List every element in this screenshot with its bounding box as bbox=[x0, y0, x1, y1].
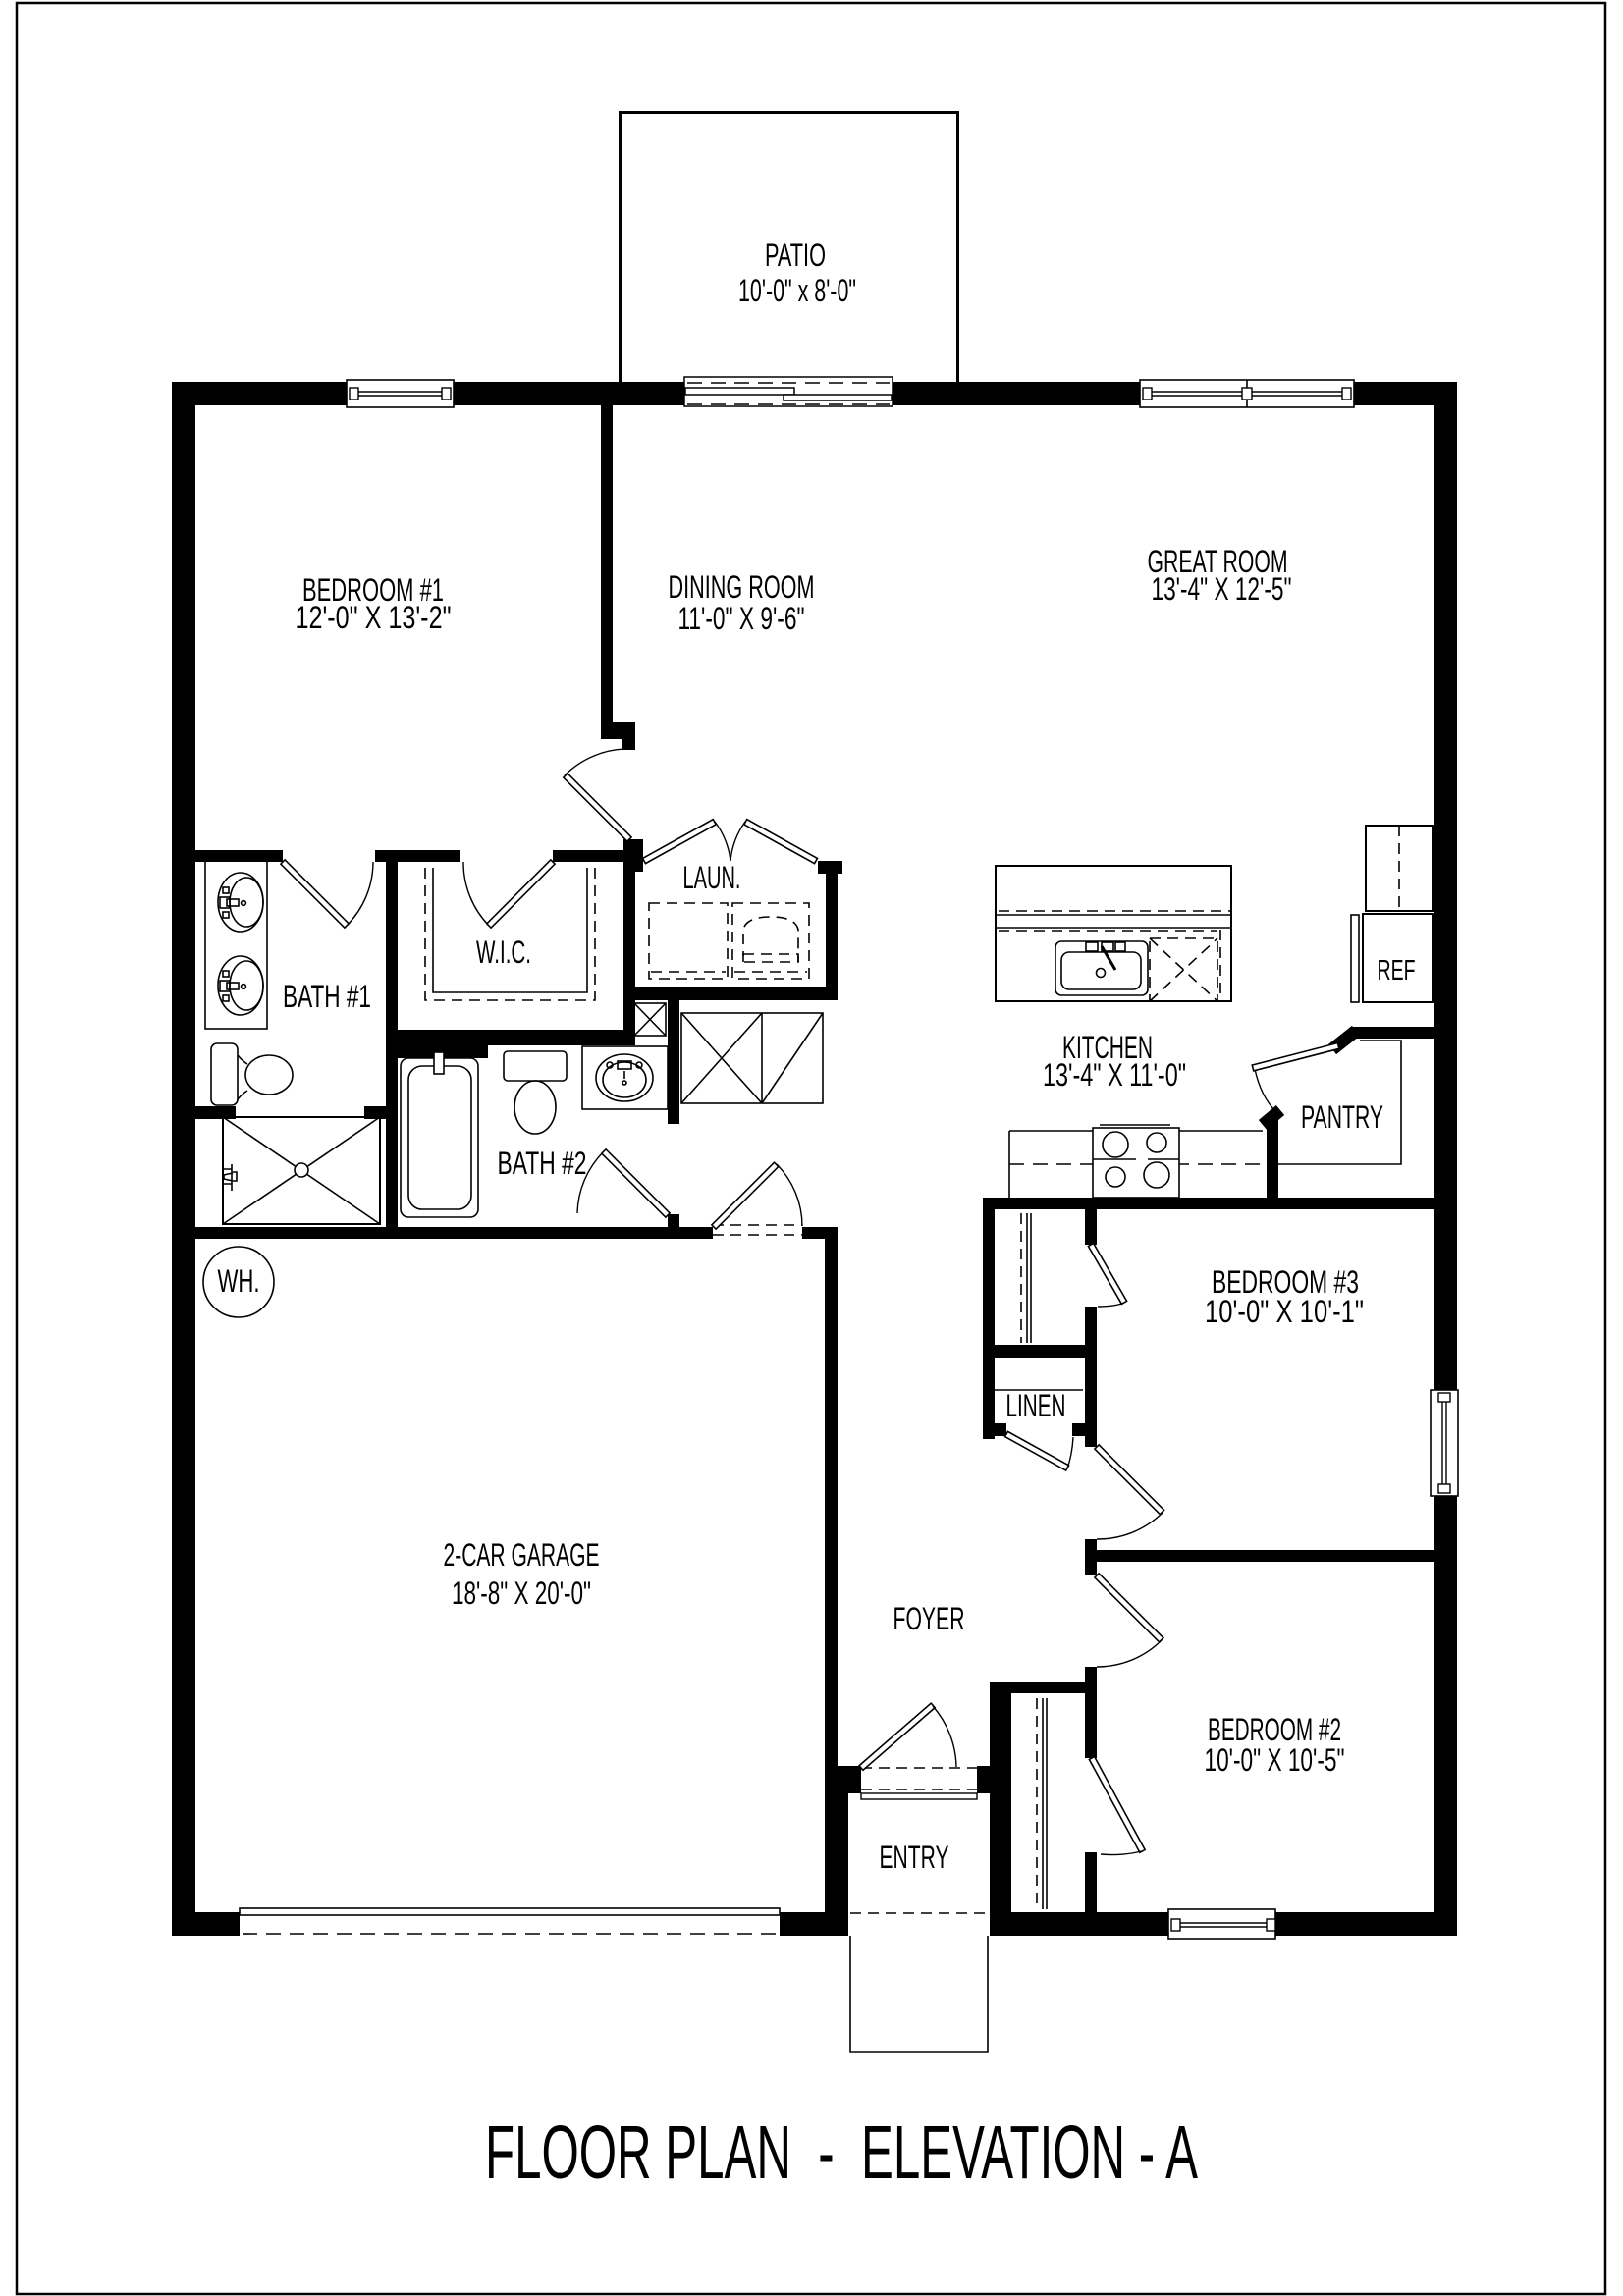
svg-text:REF: REF bbox=[1378, 955, 1416, 987]
svg-text:FLOOR PLAN - ELEVATION - A: FLOOR PLAN - ELEVATION - A bbox=[485, 2110, 1198, 2195]
svg-text:10'-0" x 8'-0": 10'-0" x 8'-0" bbox=[738, 273, 856, 308]
svg-text:13'-4" X 11'-0": 13'-4" X 11'-0" bbox=[1043, 1057, 1186, 1093]
svg-text:LINEN: LINEN bbox=[1006, 1388, 1066, 1423]
svg-text:11'-0" X 9'-6": 11'-0" X 9'-6" bbox=[678, 601, 805, 636]
svg-text:10'-0" X 10'-5": 10'-0" X 10'-5" bbox=[1205, 1742, 1345, 1778]
svg-text:FOYER: FOYER bbox=[893, 1601, 965, 1636]
svg-text:PATIO: PATIO bbox=[765, 238, 826, 273]
svg-text:PANTRY: PANTRY bbox=[1301, 1099, 1383, 1135]
svg-text:12'-0" X 13'-2": 12'-0" X 13'-2" bbox=[296, 600, 452, 635]
svg-text:13'-4" X 12'-5": 13'-4" X 12'-5" bbox=[1152, 571, 1292, 607]
svg-text:WH.: WH. bbox=[218, 1263, 260, 1299]
svg-text:ENTRY: ENTRY bbox=[880, 1840, 949, 1875]
svg-text:LAUN.: LAUN. bbox=[683, 860, 741, 895]
svg-text:10'-0" X 10'-1": 10'-0" X 10'-1" bbox=[1205, 1294, 1364, 1329]
svg-text:DINING ROOM: DINING ROOM bbox=[669, 569, 815, 605]
svg-text:W.I.C.: W.I.C. bbox=[476, 934, 531, 970]
svg-text:BATH #1: BATH #1 bbox=[283, 979, 371, 1014]
svg-text:2-CAR GARAGE: 2-CAR GARAGE bbox=[444, 1537, 600, 1573]
svg-text:BATH #2: BATH #2 bbox=[498, 1146, 587, 1181]
svg-text:18'-8" X 20'-0": 18'-8" X 20'-0" bbox=[452, 1575, 591, 1611]
